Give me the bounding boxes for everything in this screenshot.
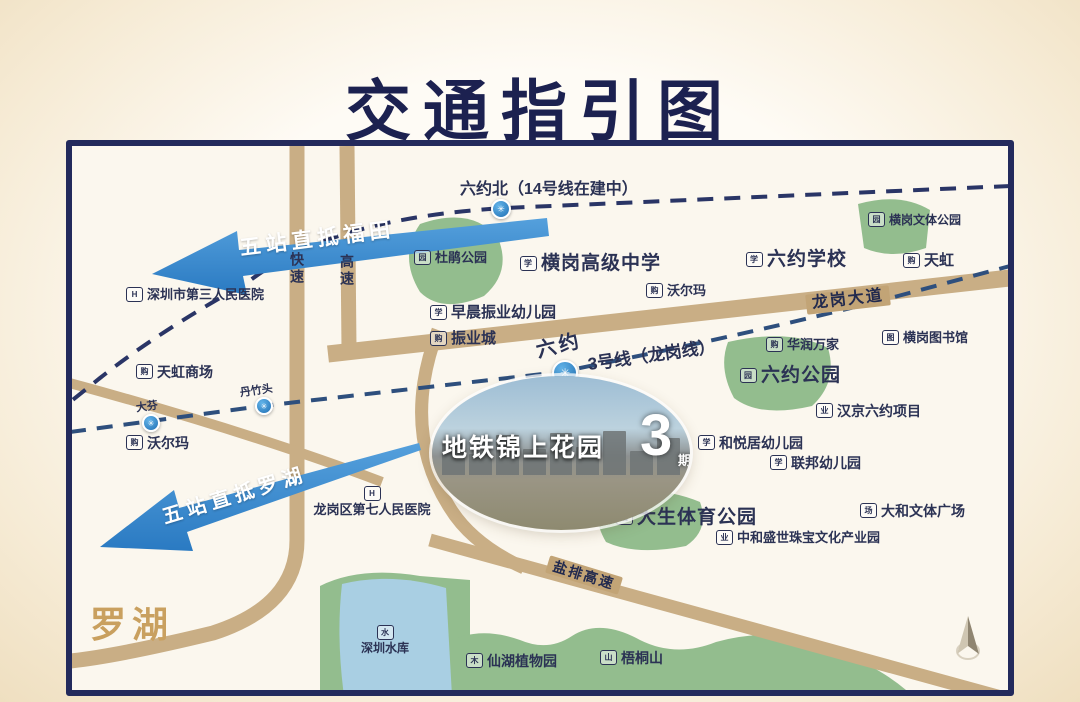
plaza-icon: 场 [860,503,877,518]
poi-zhonghe-industry-park: 业 中和盛世珠宝文化产业园 [716,530,880,545]
poi-dujuan-park: 园 杜鹃公园 [414,250,487,265]
property-phase-number: 3 [640,402,672,469]
poi-label: 早晨振业幼儿园 [451,305,556,320]
poi-dahe-plaza: 场 大和文体广场 [860,503,965,518]
poi-wutong-mountain: 山 梧桐山 [600,650,663,665]
poi-henggang-library: 图 横岗图书馆 [882,330,968,345]
poi-label: 横岗图书馆 [903,331,968,344]
property-name: 地铁锦上花园 [442,428,604,464]
poi-label: 龙岗区第七人民医院 [313,503,430,516]
poi-henggang-high-school: 学 横岗高级中学 [520,254,661,273]
traffic-guide-page: 交通指引图 [0,0,1080,702]
poi-label: 联邦幼儿园 [791,456,861,470]
school-icon: 学 [698,435,715,450]
hospital-icon: H [126,287,143,302]
poi-hospital3: H 深圳市第三人民医院 [126,287,264,302]
property-photo-oval: 地铁锦上花园 3 期 [432,376,690,530]
mall-icon: 购 [766,337,783,352]
school-icon: 学 [430,305,447,320]
poi-tianhong: 购 天虹 [903,253,954,268]
poi-walmart-west: 购 沃尔玛 [126,435,189,450]
mall-icon: 购 [430,331,447,346]
poi-walmart-east: 购 沃尔玛 [646,283,706,298]
poi-label: 和悦居幼儿园 [719,436,803,450]
library-icon: 图 [882,330,899,345]
poi-heyueju-kindergarten: 学 和悦居幼儿园 [698,435,803,450]
poi-label: 横岗文体公园 [889,214,961,226]
district-label-luohu: 罗湖 [90,596,174,648]
mall-icon: 购 [126,435,143,450]
park-icon: 园 [414,250,431,265]
poi-liuyue-school: 学 六约学校 [746,250,847,269]
poi-shenzhen-reservoir: 水 深圳水库 [345,625,425,654]
reservoir-icon: 水 [377,625,394,640]
compass-icon [957,616,979,659]
park-icon: 园 [868,212,885,227]
poi-xianhu-garden: 木 仙湖植物园 [466,653,557,668]
poi-label: 杜鹃公园 [435,251,487,264]
road-label-express-left: 快速 [290,252,304,286]
poi-label: 中和盛世珠宝文化产业园 [737,531,880,544]
station-label-liuyuebei: 六约北（14号线在建中） [460,182,638,198]
poi-label: 沃尔玛 [667,284,706,297]
poi-label: 六约学校 [767,250,847,269]
poi-label: 天虹 [924,253,954,268]
mall-icon: 购 [136,364,153,379]
mall-icon: 购 [903,253,920,268]
poi-label: 沃尔玛 [147,436,189,450]
mall-icon: 购 [646,283,663,298]
poi-hanjing-project: 业 汉京六约项目 [816,403,921,418]
school-icon: 学 [746,252,763,267]
poi-zaochen-kindergarten: 学 早晨振业幼儿园 [430,305,556,320]
poi-label: 横岗高级中学 [541,254,661,273]
poi-label: 深圳水库 [361,642,409,654]
hospital-icon: H [364,486,381,501]
school-icon: 学 [770,455,787,470]
poi-label: 大和文体广场 [881,504,965,518]
poi-label: 仙湖植物园 [487,654,557,668]
poi-label: 天虹商场 [157,365,213,379]
poi-tianhong-mall: 购 天虹商场 [136,364,213,379]
road-label-express-right: 高速 [340,254,354,288]
poi-label: 六约公园 [761,366,841,385]
school-icon: 学 [520,256,537,271]
poi-henggang-culture-park: 园 横岗文体公园 [868,212,961,227]
garden-icon: 木 [466,653,483,668]
station-dafen: ✳ [142,414,160,432]
business-icon: 业 [716,530,733,545]
poi-label: 深圳市第三人民医院 [147,288,264,301]
mountain-icon: 山 [600,650,617,665]
poi-lianbang-kindergarten: 学 联邦幼儿园 [770,455,861,470]
poi-hospital7: H 龙岗区第七人民医院 [302,486,442,516]
poi-zhenye-city: 购 振业城 [430,331,496,346]
poi-liuyue-park: 园 六约公园 [740,366,841,385]
poi-label: 梧桐山 [621,651,663,665]
poi-label: 振业城 [451,331,496,346]
station-danzhutou: ✳ [255,397,273,415]
poi-label: 汉京六约项目 [837,404,921,418]
property-phase-suffix: 期 [678,450,690,469]
park-icon: 园 [740,368,757,383]
poi-label: 大生体育公园 [637,508,757,527]
poi-label: 华润万家 [787,338,839,351]
station-liuyuebei: ✳ [491,199,511,219]
building-icon: 业 [816,403,833,418]
poi-huarun-wanjia: 购 华润万家 [766,337,839,352]
